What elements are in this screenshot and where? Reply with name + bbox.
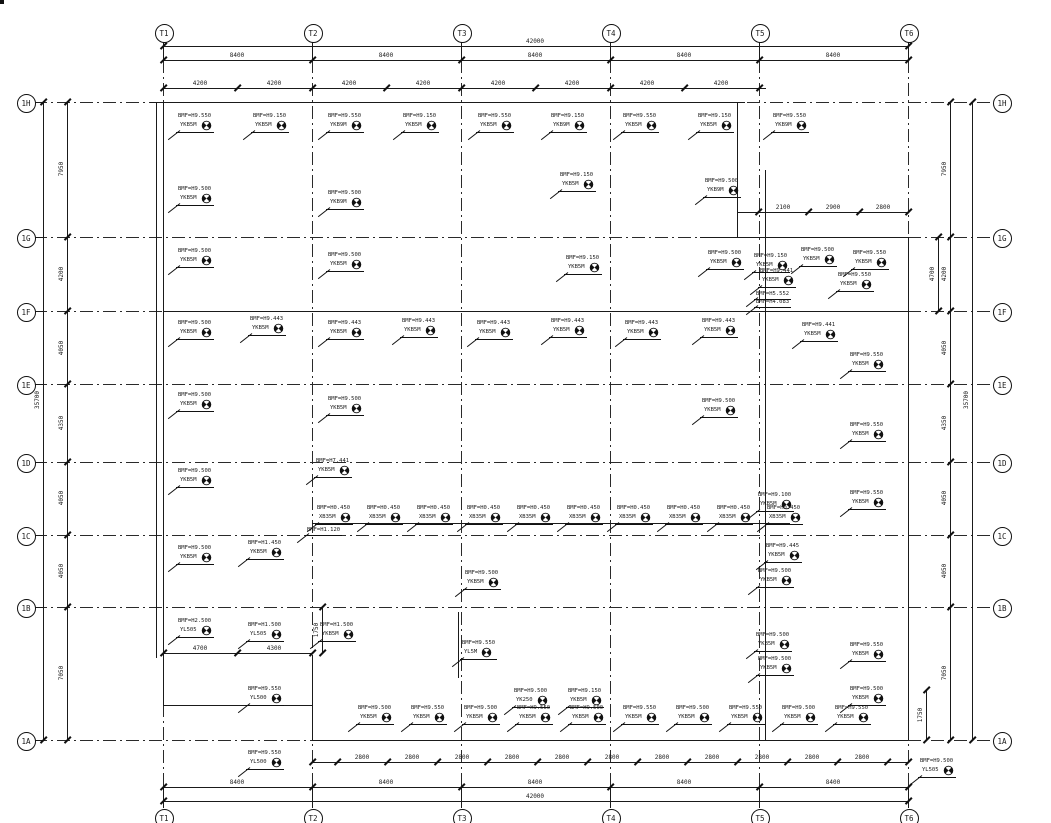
leader-underline <box>706 269 744 270</box>
slab-code-text: YKB9M <box>773 122 794 129</box>
section-mark-icon <box>583 179 594 190</box>
slab-elevation-label: BMF=H9.550YKB5M <box>833 705 871 725</box>
section-mark-icon <box>271 693 282 704</box>
dimension-line <box>67 102 68 740</box>
section-mark-icon <box>351 120 362 131</box>
slab-elevation-label: BMF=H9.500YKB5M <box>176 545 214 565</box>
leader-underline <box>326 209 364 210</box>
leader-underline <box>780 724 818 725</box>
leader-underline <box>315 524 353 525</box>
slab-elevation-text: BMF=H9.500 <box>462 705 500 712</box>
slab-elevation-text: BMF=H9.500 <box>356 705 394 712</box>
section-mark-icon <box>591 695 602 706</box>
grid-bubble: 1E <box>993 376 1012 395</box>
leader-underline <box>365 524 403 525</box>
slab-elevation-text: BMF=H9.500 <box>176 468 214 475</box>
leader-underline <box>549 337 587 338</box>
dimension-text: 2800 <box>355 755 369 761</box>
grid-bubble: 1H <box>993 94 1012 113</box>
structural-framing-plan-sheet: 4200084008400840084008400420042004200420… <box>0 0 1051 823</box>
section-mark-icon <box>201 625 212 636</box>
grid-bubble: 1B <box>17 599 36 618</box>
dimension-text: 4050 <box>59 491 65 505</box>
grid-bubble: T4 <box>602 24 621 43</box>
section-mark-icon <box>731 257 742 268</box>
leader-underline <box>515 524 553 525</box>
leader-line <box>840 659 852 669</box>
section-mark-icon <box>201 327 212 338</box>
grid-bubble: 1A <box>17 732 36 751</box>
dimension-text: 4050 <box>59 564 65 578</box>
beam-line <box>163 311 765 312</box>
slab-code-text: XB35M <box>767 514 788 521</box>
leader-line <box>168 130 180 140</box>
slab-elevation-label: BMF=H0.450XB35M <box>365 505 403 525</box>
slab-elevation-text: BMF=H9.550 <box>460 640 497 647</box>
leader-underline <box>475 339 513 340</box>
slab-code-text: YKB5M <box>850 499 871 506</box>
slab-code-text: XB35M <box>317 514 338 521</box>
slab-elevation-label: BMF=H4.083 <box>754 299 791 308</box>
section-mark-icon <box>858 712 869 723</box>
section-mark-icon <box>590 512 601 523</box>
dimension-line <box>163 787 908 788</box>
slab-code-text: YKB5M <box>178 554 199 561</box>
slab-elevation-label: BMF=H9.500YKB9M <box>703 178 741 198</box>
slab-code-text: YKB5M <box>570 714 591 721</box>
slab-elevation-text: BMF=H9.550 <box>621 705 659 712</box>
slab-code-text: YKB5M <box>178 122 199 129</box>
section-mark-icon <box>351 259 362 270</box>
slab-code-text: YKB5M <box>328 329 349 336</box>
slab-code-text: YKB5M <box>625 329 646 336</box>
dimension-text: 8400 <box>677 53 691 59</box>
slab-elevation-text: BMF=H9.443 <box>549 318 587 325</box>
slab-elevation-text: BMF=H9.500 <box>703 178 741 185</box>
section-mark-icon <box>646 712 657 723</box>
leader-underline <box>246 559 284 560</box>
leader-underline <box>326 339 364 340</box>
leader-underline <box>621 724 659 725</box>
dimension-text: 2100 <box>776 205 790 211</box>
section-mark-icon <box>540 712 551 723</box>
leader-line <box>392 335 404 345</box>
dimension-text: 4200 <box>267 81 281 87</box>
slab-elevation-label: BMF=H9.550YKB9M <box>326 113 364 133</box>
dimension-text: 8400 <box>528 53 542 59</box>
grid-bubble: T1 <box>155 809 174 823</box>
leader-line <box>348 722 360 732</box>
slab-elevation-label: BMF=H9.500YL505 <box>918 758 956 778</box>
slab-elevation-text: BMF=H2.500 <box>176 618 214 625</box>
leader-underline <box>848 371 886 372</box>
section-mark-icon <box>648 327 659 338</box>
slab-code-text: YKB5M <box>403 122 424 129</box>
leader-underline <box>765 524 803 525</box>
leader-line <box>467 337 479 347</box>
slab-elevation-label: BMF=H0.450XB35M <box>515 505 553 525</box>
dimension-text: 2800 <box>876 205 890 211</box>
slab-code-text: YKB5M <box>465 579 486 586</box>
leader-line <box>401 722 413 732</box>
dimension-text: 2800 <box>555 755 569 761</box>
section-mark-icon <box>779 639 790 650</box>
slab-elevation-text: BMF=H9.500 <box>674 705 712 712</box>
leader-underline <box>918 777 956 778</box>
beam-line <box>312 740 908 741</box>
slab-code-text: YKB5M <box>178 329 199 336</box>
slab-elevation-label: BMF=H0.450XB35M <box>565 505 603 525</box>
leader-line <box>168 337 180 347</box>
slab-code-text: YKB9M <box>551 122 572 129</box>
leader-underline <box>400 337 438 338</box>
section-mark-icon <box>825 329 836 340</box>
grid-line-vertical <box>461 60 462 787</box>
section-mark-icon <box>201 552 212 563</box>
beam-line <box>737 102 738 237</box>
section-mark-icon <box>434 712 445 723</box>
leader-underline <box>623 339 661 340</box>
leader-underline <box>800 341 838 342</box>
dimension-text: 2800 <box>605 755 619 761</box>
grid-bubble: T2 <box>304 24 323 43</box>
slab-elevation-label: BMF=H9.550YKB5M <box>515 705 553 725</box>
dimension-text: 7050 <box>59 666 65 680</box>
slab-elevation-label: BMF=H9.443YKB5M <box>248 316 286 336</box>
leader-line <box>763 130 775 140</box>
slab-code-text: YKB5M <box>850 651 871 658</box>
slab-elevation-text: BMF=H9.445 <box>764 543 802 550</box>
slab-elevation-text: BMF=H9.550 <box>326 113 364 120</box>
grid-bubble: T1 <box>155 24 174 43</box>
grid-line-horizontal <box>34 384 993 385</box>
leader-line <box>168 485 180 495</box>
beam-line <box>700 237 908 238</box>
slab-elevation-label: BMF=H9.550YKB5M <box>851 250 889 270</box>
slab-code-text: XB35M <box>567 514 588 521</box>
slab-code-text: YKB5M <box>756 641 777 648</box>
grid-bubble: 1F <box>993 303 1012 322</box>
slab-elevation-label: BMF=H0.450XB35M <box>465 505 503 525</box>
section-mark-icon <box>873 497 884 508</box>
slab-elevation-text: BMF=H9.500 <box>463 570 501 577</box>
dimension-text: 4050 <box>942 564 948 578</box>
slab-elevation-label: BMF=H9.550YKB5M <box>621 705 659 725</box>
slab-elevation-text: BMF=H9.500 <box>176 545 214 552</box>
grid-bubble: 1F <box>17 303 36 322</box>
slab-elevation-text: BMF=H9.500 <box>176 186 214 193</box>
grid-bubble: T3 <box>453 809 472 823</box>
slab-elevation-label: BMF=H9.443YKB5M <box>623 320 661 340</box>
leader-line <box>840 507 852 517</box>
grid-bubble: 1A <box>993 732 1012 751</box>
dimension-text: 2800 <box>405 755 419 761</box>
leader-underline <box>665 524 703 525</box>
leader-line <box>840 369 852 379</box>
dimension-text: 7950 <box>59 162 65 176</box>
grid-bubble: T2 <box>304 809 323 823</box>
section-mark-icon <box>490 512 501 523</box>
slab-code-text: YKB5M <box>782 714 803 721</box>
leader-underline <box>799 266 837 267</box>
leader-line <box>719 722 731 732</box>
beam-line <box>150 102 745 103</box>
leader-underline <box>848 441 886 442</box>
leader-line <box>238 639 250 649</box>
slab-elevation-label: BMF=H1.120 <box>305 527 342 536</box>
slab-elevation-label: BMF=H9.500YKB5M <box>754 632 792 652</box>
leader-underline <box>564 274 602 275</box>
section-mark-icon <box>721 120 732 131</box>
dimension-text: 2800 <box>755 755 769 761</box>
slab-code-text: XB35M <box>417 514 438 521</box>
leader-line <box>240 333 252 343</box>
section-mark-icon <box>501 120 512 131</box>
dimension-text: 4200 <box>59 267 65 281</box>
dimension-line <box>163 60 908 61</box>
slab-code-text: YKB5M <box>838 281 859 288</box>
slab-elevation-text: BMF=H9.550 <box>621 113 659 120</box>
leader-line <box>695 195 707 205</box>
dimension-text: 4050 <box>942 491 948 505</box>
slab-code-text: YKB5M <box>178 401 199 408</box>
grid-bubble: 1C <box>17 527 36 546</box>
leader-underline <box>326 271 364 272</box>
slab-elevation-text: BMF=H0.450 <box>515 505 553 512</box>
slab-code-text: YKB5M <box>698 122 719 129</box>
section-mark-icon <box>725 325 736 336</box>
dimension-line <box>737 212 908 213</box>
dimension-line <box>926 690 927 740</box>
slab-elevation-text: BMF=H9.150 <box>564 255 602 262</box>
slab-code-text: YL500 <box>248 759 269 766</box>
slab-elevation-label: BMF=H0.450XB35M <box>615 505 653 525</box>
dimension-text: 4200 <box>640 81 654 87</box>
leader-line <box>168 409 180 419</box>
leader-underline <box>318 641 356 642</box>
slab-code-text: YKB5M <box>853 259 874 266</box>
slab-code-text: YKB5M <box>760 277 781 284</box>
slab-elevation-text: BMF=H9.550 <box>836 272 874 279</box>
slab-elevation-label: BMF=H9.550YL5M <box>460 640 497 660</box>
slab-elevation-label: BMF=H9.443YKB5M <box>549 318 587 338</box>
section-mark-icon <box>690 512 701 523</box>
dimension-text: 4200 <box>714 81 728 87</box>
slab-elevation-label: BMF=H9.550YKB5M <box>836 272 874 292</box>
section-mark-icon <box>824 254 835 265</box>
beam-line <box>163 705 312 706</box>
slab-code-text: YKB5M <box>358 714 379 721</box>
slab-code-text: YKB5M <box>551 327 572 334</box>
section-mark-icon <box>273 323 284 334</box>
slab-elevation-text: BMF=H1.500 <box>246 622 284 629</box>
leader-underline <box>176 637 214 638</box>
dimension-tick <box>318 649 325 656</box>
slab-code-text: YL5M <box>462 649 479 656</box>
slab-elevation-label: BMF=H9.445YKB5M <box>764 543 802 563</box>
slab-elevation-label: BMF=H9.550YL500 <box>246 686 284 706</box>
slab-elevation-text: BMF=H9.550 <box>409 705 447 712</box>
leader-underline <box>756 675 794 676</box>
slab-elevation-text: BMF=H9.441 <box>758 268 796 275</box>
slab-code-text: YKB5M <box>402 327 423 334</box>
slab-code-text: YKB5M <box>758 665 779 672</box>
slab-code-text: YK250 <box>514 697 535 704</box>
slab-elevation-label: BMF=H9.150YKB5M <box>401 113 439 133</box>
slab-elevation-text: BMF=H9.500 <box>799 247 837 254</box>
section-mark-icon <box>943 765 954 776</box>
leader-line <box>825 722 837 732</box>
section-mark-icon <box>593 712 604 723</box>
slab-code-text: YL505 <box>178 627 199 634</box>
leader-underline <box>754 307 791 308</box>
leader-line <box>840 439 852 449</box>
slab-code-text: YKB5M <box>708 259 729 266</box>
leader-underline <box>615 524 653 525</box>
section-mark-icon <box>351 327 362 338</box>
section-mark-icon <box>873 693 884 704</box>
slab-elevation-label: BMF=H9.500YKB5M <box>356 705 394 725</box>
slab-elevation-text: BMF=H9.550 <box>515 705 553 712</box>
slab-elevation-text: BMF=H9.150 <box>401 113 439 120</box>
dimension-line <box>312 762 908 763</box>
slab-code-text: YKB5M <box>568 697 589 704</box>
slab-elevation-label: BMF=H9.500YKB5M <box>674 705 712 725</box>
leader-line <box>393 130 405 140</box>
section-mark-icon <box>752 712 763 723</box>
leader-underline <box>176 267 214 268</box>
leader-underline <box>700 337 738 338</box>
slab-code-text: YKB9M <box>705 187 726 194</box>
leader-underline <box>326 132 364 133</box>
leader-line <box>910 775 922 785</box>
slab-code-text: XB35M <box>617 514 638 521</box>
dimension-text: 8400 <box>379 53 393 59</box>
section-mark-icon <box>487 712 498 723</box>
slab-elevation-text: BMF=H9.500 <box>918 758 956 765</box>
section-mark-icon <box>201 399 212 410</box>
slab-code-text: XB35M <box>667 514 688 521</box>
slab-elevation-text: BMF=H9.150 <box>558 172 596 179</box>
slab-elevation-label: BMF=H9.441YKB5M <box>758 268 796 288</box>
section-mark-icon <box>201 475 212 486</box>
leader-underline <box>549 132 587 133</box>
dimension-text: 4300 <box>267 646 281 652</box>
slab-code-text: YKB5M <box>802 331 823 338</box>
slab-code-text: YKB5M <box>411 714 432 721</box>
slab-elevation-text: BMF=H9.500 <box>326 252 364 259</box>
section-mark-icon <box>646 120 657 131</box>
section-mark-icon <box>781 575 792 586</box>
bubble-stem <box>312 787 313 808</box>
dimension-text: 4350 <box>942 416 948 430</box>
slab-code-text: YKB5M <box>248 549 269 556</box>
slab-elevation-label: BMF=H9.550YKB5M <box>476 113 514 133</box>
section-mark-icon <box>426 120 437 131</box>
slab-elevation-text: BMF=H9.150 <box>251 113 289 120</box>
slab-code-text: YKB5M <box>328 261 349 268</box>
slab-code-text: YKB5M <box>560 181 581 188</box>
slab-elevation-label: BMF=H9.550YKB5M <box>621 113 659 133</box>
slab-code-text: YKB5M <box>702 407 723 414</box>
slab-elevation-label: BMF=H9.500YKB5M <box>568 705 606 725</box>
leader-underline <box>326 415 364 416</box>
slab-elevation-text: BMF=H9.500 <box>706 250 744 257</box>
section-mark-icon <box>201 255 212 266</box>
slab-elevation-text: BMF=H9.500 <box>700 398 738 405</box>
section-mark-icon <box>425 325 436 336</box>
slab-elevation-text: BMF=H9.500 <box>176 248 214 255</box>
slab-elevation-label: BMF=H9.550YL500 <box>246 750 284 770</box>
grid-bubble: 1B <box>993 599 1012 618</box>
slab-elevation-label: BMF=H9.500YKB5M <box>780 705 818 725</box>
leader-line <box>168 265 180 275</box>
grid-bubble: 1D <box>993 454 1012 473</box>
slab-code-text: YKB5M <box>758 577 779 584</box>
section-mark-icon <box>339 465 350 476</box>
dimension-text: 2800 <box>455 755 469 761</box>
leader-underline <box>176 487 214 488</box>
slab-elevation-label: BMF=H9.150YKB5M <box>696 113 734 133</box>
slab-elevation-text: BMF=H9.550 <box>848 352 886 359</box>
leader-underline <box>176 411 214 412</box>
leader-underline <box>176 132 214 133</box>
leader-underline <box>771 132 809 133</box>
grid-bubble: 1H <box>17 94 36 113</box>
leader-underline <box>460 659 497 660</box>
beam-line <box>765 311 908 312</box>
dimension-text: 8400 <box>677 780 691 786</box>
leader-line <box>746 305 758 315</box>
bubble-stem <box>461 787 462 808</box>
slab-elevation-text: BMF=H0.450 <box>315 505 353 512</box>
leader-line <box>168 635 180 645</box>
section-mark-icon <box>390 512 401 523</box>
section-mark-icon <box>340 512 351 523</box>
slab-elevation-text: BMF=H9.500 <box>848 686 886 693</box>
leader-line <box>243 130 255 140</box>
slab-code-text: YL505 <box>248 631 269 638</box>
slab-code-text: YKB5M <box>702 327 723 334</box>
slab-elevation-text: BMF=H9.500 <box>326 190 364 197</box>
section-mark-icon <box>796 120 807 131</box>
slab-elevation-text: BMF=H0.450 <box>665 505 703 512</box>
grid-bubble: 1D <box>17 454 36 473</box>
dimension-text: 7950 <box>942 162 948 176</box>
slab-elevation-label: BMF=H9.500YKB5M <box>176 248 214 268</box>
slab-elevation-label: BMF=H9.443YKB5M <box>700 318 738 338</box>
slab-elevation-text: BMF=H0.450 <box>565 505 603 512</box>
leader-underline <box>674 724 712 725</box>
leader-line <box>468 130 480 140</box>
section-mark-icon <box>381 712 392 723</box>
slab-code-text: YKB5M <box>850 695 871 702</box>
slab-elevation-text: BMF=H9.500 <box>568 705 606 712</box>
slab-elevation-label: BMF=H9.550YKB5M <box>848 642 886 662</box>
section-mark-icon <box>873 359 884 370</box>
slab-elevation-label: BMF=H9.443YKB5M <box>326 320 364 340</box>
leader-line <box>688 130 700 140</box>
slab-code-text: YKB9M <box>328 199 349 206</box>
dimension-text: 2800 <box>855 755 869 761</box>
slab-code-text: YKB5M <box>478 122 499 129</box>
section-mark-icon <box>500 327 511 338</box>
slab-elevation-label: BMF=H0.450XB35M <box>715 505 753 525</box>
leader-underline <box>176 205 214 206</box>
leader-underline <box>621 132 659 133</box>
slab-elevation-text: BMF=H9.443 <box>400 318 438 325</box>
leader-line <box>613 130 625 140</box>
